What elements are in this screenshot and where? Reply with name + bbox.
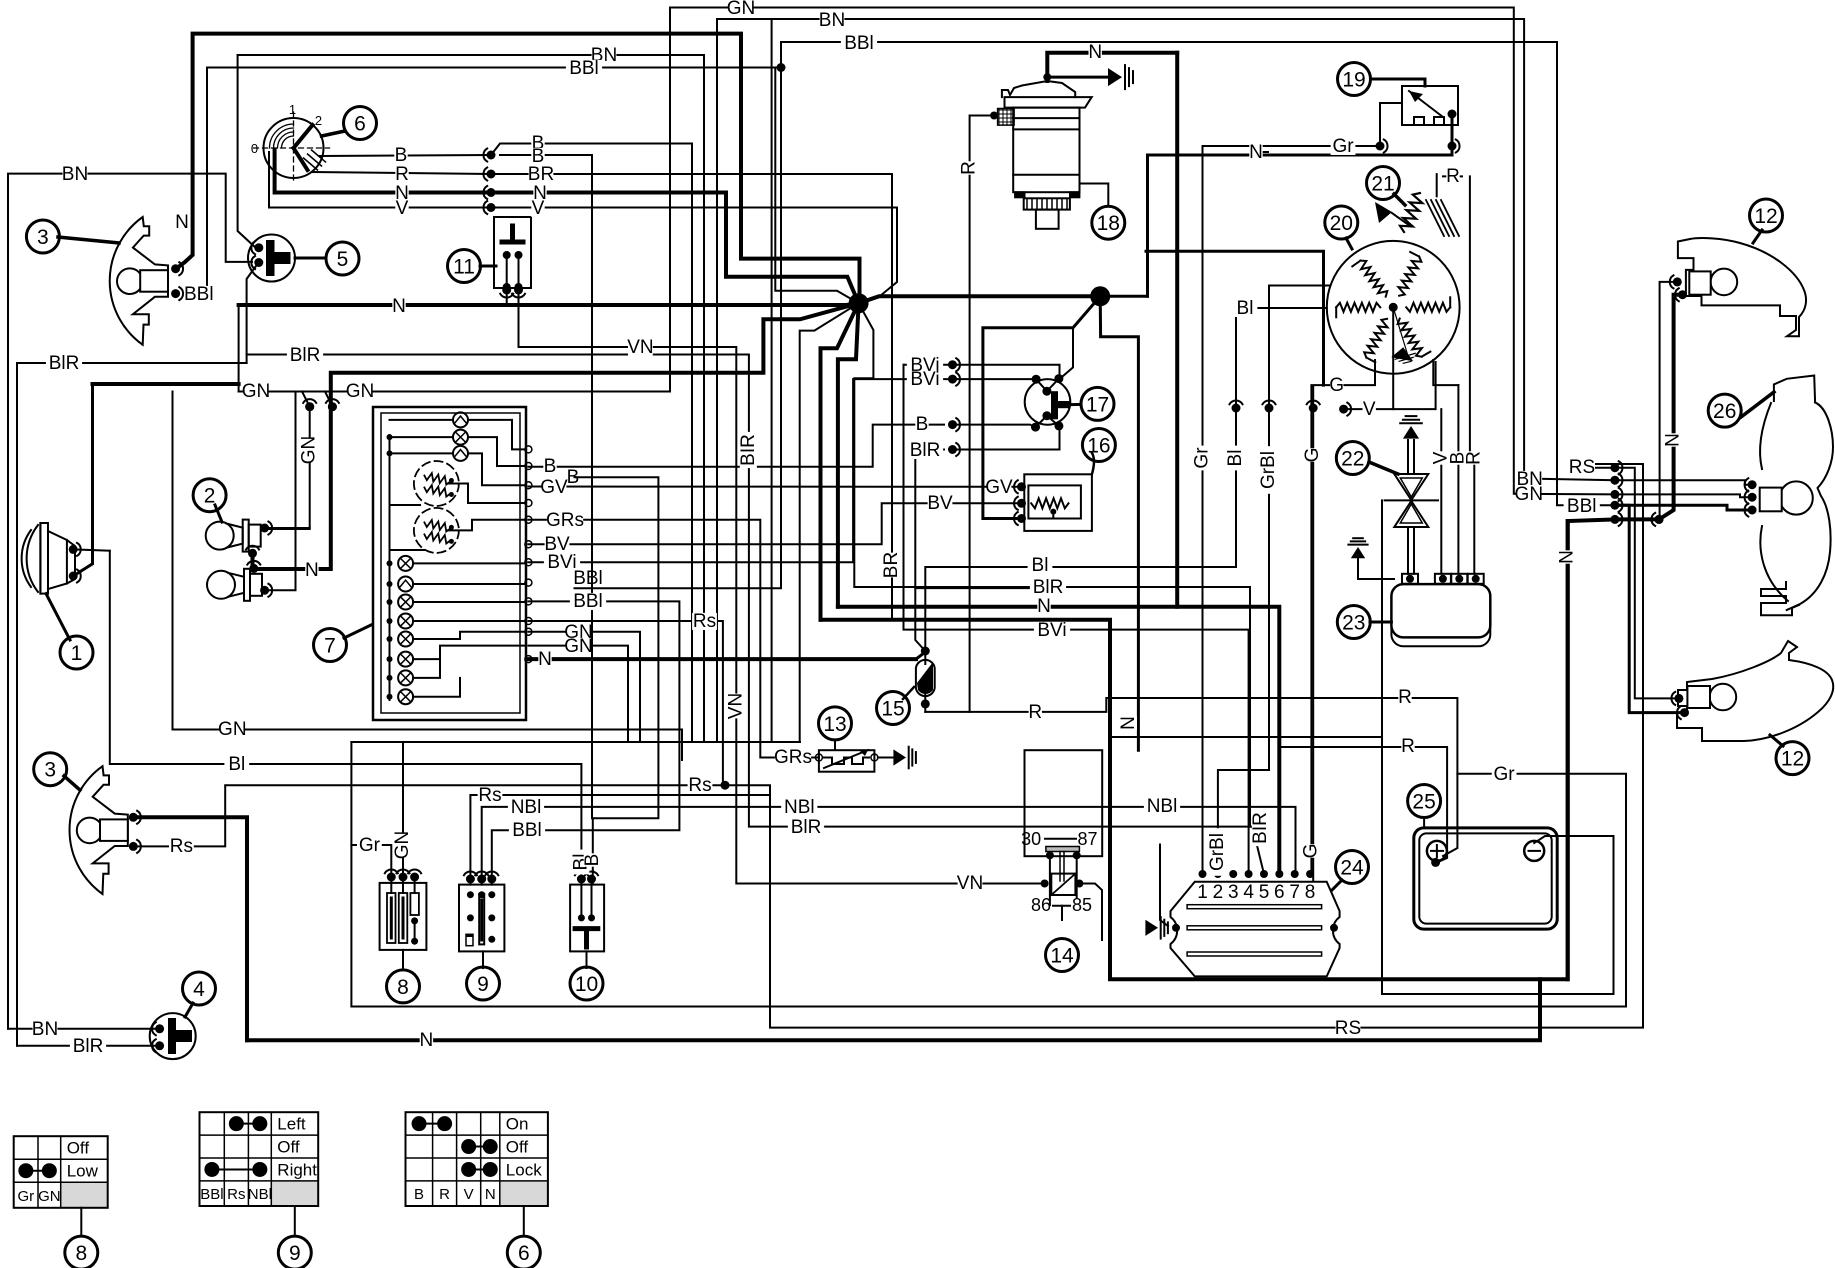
svg-text:7: 7: [324, 635, 336, 658]
svg-text:BBl: BBl: [844, 33, 874, 54]
svg-text:BlR: BlR: [73, 1036, 104, 1057]
svg-text:R: R: [959, 161, 980, 175]
svg-text:GN: GN: [727, 0, 756, 19]
svg-text:13: 13: [823, 713, 846, 736]
svg-text:N: N: [392, 296, 406, 317]
svg-text:23: 23: [1342, 612, 1365, 635]
svg-text:5: 5: [337, 248, 349, 271]
svg-text:B: B: [567, 467, 580, 488]
svg-text:7: 7: [1289, 882, 1300, 903]
svg-text:8: 8: [397, 976, 409, 999]
svg-text:87: 87: [1077, 829, 1097, 849]
svg-text:BBl: BBl: [569, 58, 599, 79]
svg-text:V: V: [532, 198, 545, 219]
svg-text:BN: BN: [62, 164, 88, 185]
svg-text:R: R: [1401, 736, 1415, 757]
svg-text:BR: BR: [881, 552, 902, 578]
svg-text:6: 6: [354, 113, 366, 136]
svg-text:BlR: BlR: [910, 440, 941, 461]
svg-text:N: N: [1557, 550, 1578, 564]
svg-text:Rs: Rs: [693, 611, 716, 632]
svg-text:GrBl: GrBl: [1258, 451, 1279, 489]
svg-text:18: 18: [1097, 212, 1120, 235]
svg-text:1: 1: [71, 642, 83, 665]
svg-text:Rs: Rs: [227, 1186, 245, 1203]
svg-text:BlR: BlR: [49, 353, 80, 374]
svg-text:Bl: Bl: [228, 754, 245, 775]
svg-text:9: 9: [289, 1242, 301, 1265]
svg-text:V: V: [396, 198, 409, 219]
svg-text:N: N: [1663, 433, 1684, 447]
svg-text:N: N: [538, 649, 552, 670]
svg-text:V: V: [464, 1186, 474, 1203]
svg-text:GN: GN: [218, 719, 247, 740]
svg-text:Off: Off: [506, 1138, 529, 1157]
svg-text:BlR: BlR: [290, 345, 321, 366]
svg-text:BBl: BBl: [512, 820, 542, 841]
svg-text:6: 6: [1274, 882, 1285, 903]
svg-text:26: 26: [1713, 400, 1736, 423]
svg-text:GV: GV: [985, 477, 1013, 498]
svg-text:BBl: BBl: [573, 568, 603, 589]
svg-text:BBl: BBl: [200, 1186, 223, 1203]
svg-text:17: 17: [1086, 393, 1109, 416]
svg-text:GN: GN: [1515, 484, 1544, 505]
svg-text:15: 15: [881, 698, 904, 721]
svg-text:B: B: [544, 456, 557, 477]
svg-text:V: V: [1363, 399, 1376, 420]
svg-text:N: N: [1037, 596, 1051, 617]
svg-text:N: N: [420, 1030, 434, 1051]
svg-text:BlR: BlR: [1033, 577, 1064, 598]
svg-text:VN: VN: [957, 873, 983, 894]
svg-text:BVi: BVi: [1037, 620, 1066, 641]
svg-text:Rs: Rs: [478, 785, 501, 806]
svg-text:Bl: Bl: [1237, 298, 1254, 319]
svg-text:6: 6: [518, 1242, 530, 1265]
svg-text:3: 3: [1228, 882, 1239, 903]
svg-text:G: G: [1300, 844, 1321, 859]
svg-text:N: N: [1249, 142, 1263, 163]
svg-text:GN: GN: [242, 381, 271, 402]
svg-text:GN: GN: [346, 381, 375, 402]
svg-text:B: B: [395, 145, 408, 166]
svg-text:Low: Low: [67, 1162, 99, 1181]
svg-text:25: 25: [1412, 791, 1435, 814]
svg-text:VN: VN: [627, 337, 653, 358]
svg-text:3: 3: [44, 759, 56, 782]
svg-text:Off: Off: [67, 1139, 90, 1158]
svg-text:85: 85: [1072, 895, 1092, 915]
svg-text:R: R: [439, 1186, 450, 1203]
svg-text:G: G: [1302, 448, 1323, 463]
svg-text:GN: GN: [392, 831, 413, 860]
svg-text:R: R: [1398, 687, 1412, 708]
svg-text:Gr: Gr: [359, 835, 381, 856]
svg-text:86: 86: [1031, 895, 1051, 915]
svg-text:B: B: [582, 854, 603, 867]
svg-text:G: G: [1329, 375, 1344, 396]
svg-text:NBl: NBl: [784, 797, 815, 818]
svg-text:Off: Off: [277, 1138, 300, 1157]
svg-text:R: R: [1028, 702, 1042, 723]
svg-text:GN: GN: [38, 1188, 61, 1205]
svg-text:3: 3: [37, 226, 49, 249]
svg-text:Left: Left: [277, 1115, 306, 1134]
svg-text:BN: BN: [32, 1019, 58, 1040]
svg-text:21: 21: [1371, 173, 1394, 196]
svg-text:4: 4: [1243, 882, 1254, 903]
svg-text:On: On: [506, 1115, 529, 1134]
svg-text:2: 2: [315, 113, 322, 128]
svg-text:4: 4: [193, 978, 205, 1001]
svg-text:RS: RS: [1335, 1018, 1361, 1039]
svg-text:1: 1: [1197, 882, 1208, 903]
svg-text:Gr: Gr: [18, 1188, 35, 1205]
svg-text:12: 12: [1754, 205, 1777, 228]
svg-text:GN: GN: [564, 636, 593, 657]
svg-text:22: 22: [1341, 448, 1364, 471]
svg-text:BN: BN: [819, 10, 845, 31]
svg-text:1: 1: [289, 102, 296, 117]
svg-text:BIR: BIR: [738, 434, 759, 466]
svg-text:19: 19: [1342, 69, 1365, 92]
svg-text:14: 14: [1050, 945, 1074, 968]
svg-text:8: 8: [1305, 882, 1316, 903]
svg-text:Gr: Gr: [1332, 136, 1354, 157]
svg-text:BlR: BlR: [791, 817, 822, 838]
svg-text:R: R: [395, 164, 409, 185]
svg-text:Bl: Bl: [1032, 555, 1049, 576]
svg-text:20: 20: [1330, 212, 1353, 235]
svg-text:9: 9: [477, 973, 489, 996]
svg-text:Gr: Gr: [1494, 764, 1516, 785]
svg-text:16: 16: [1087, 435, 1110, 458]
svg-text:30: 30: [1021, 829, 1041, 849]
svg-text:Rs: Rs: [688, 775, 711, 796]
svg-text:BBl: BBl: [1567, 496, 1597, 517]
svg-text:5: 5: [1259, 882, 1270, 903]
svg-text:NBl: NBl: [1147, 796, 1178, 817]
svg-text:NBl: NBl: [511, 797, 542, 818]
svg-text:NBl: NBl: [248, 1186, 272, 1203]
svg-text:N: N: [485, 1186, 496, 1203]
svg-text:10: 10: [575, 973, 598, 996]
svg-text:Rs: Rs: [170, 836, 193, 857]
svg-text:B: B: [916, 414, 929, 435]
svg-text:BR: BR: [528, 164, 554, 185]
svg-text:2: 2: [1213, 882, 1224, 903]
svg-text:B: B: [414, 1186, 424, 1203]
svg-text:RS: RS: [1569, 457, 1595, 478]
svg-text:24: 24: [1340, 857, 1364, 880]
svg-text:N: N: [175, 212, 189, 233]
svg-text:GV: GV: [540, 477, 568, 498]
svg-text:Bl: Bl: [1225, 450, 1246, 467]
svg-text:12: 12: [1781, 748, 1804, 771]
svg-text:GN: GN: [299, 436, 320, 465]
svg-text:GRs: GRs: [774, 747, 812, 768]
svg-text:0: 0: [251, 141, 258, 156]
svg-text:11: 11: [453, 256, 475, 279]
svg-text:BV: BV: [927, 493, 953, 514]
svg-text:2: 2: [204, 485, 216, 508]
svg-text:8: 8: [75, 1242, 87, 1265]
svg-text:GrBl: GrBl: [1207, 833, 1228, 871]
svg-text:Gr: Gr: [1192, 447, 1213, 469]
svg-text:BIR: BIR: [1250, 812, 1271, 844]
svg-text:BVi: BVi: [910, 369, 939, 390]
svg-text:Lock: Lock: [506, 1160, 542, 1179]
svg-text:BBl: BBl: [184, 284, 214, 305]
svg-text:VN: VN: [725, 693, 746, 719]
svg-text:R: R: [1446, 166, 1460, 187]
svg-text:BBl: BBl: [573, 591, 603, 612]
svg-text:N: N: [305, 560, 319, 581]
svg-text:Right: Right: [277, 1160, 317, 1179]
svg-text:N: N: [1088, 42, 1102, 63]
svg-text:N: N: [1118, 716, 1139, 730]
svg-text:GRs: GRs: [546, 510, 584, 531]
svg-text:R: R: [1463, 451, 1484, 465]
